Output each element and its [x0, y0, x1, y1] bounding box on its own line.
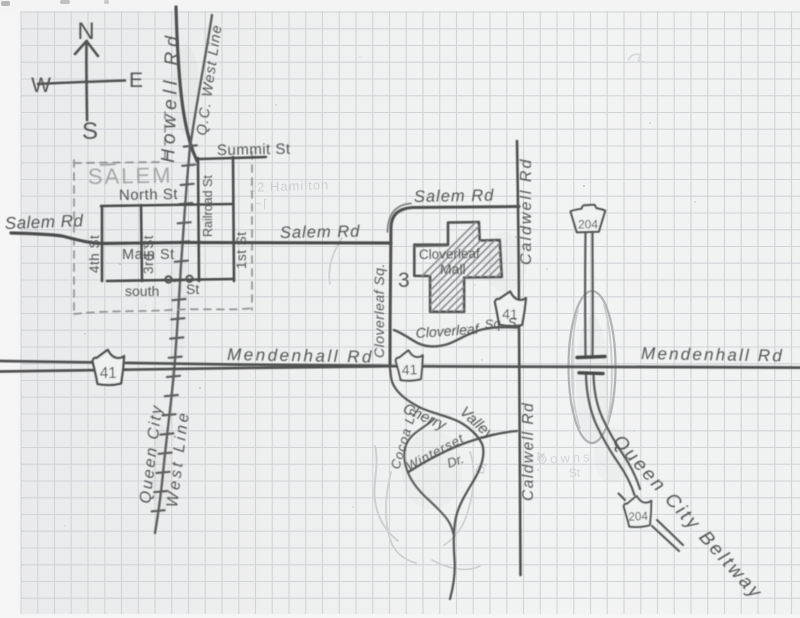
svg-text:41: 41 [100, 365, 117, 382]
svg-text:N: N [77, 18, 94, 45]
svg-text:St: St [568, 465, 581, 480]
svg-text:south: south [125, 283, 159, 299]
svg-text:Caldwell Rd: Caldwell Rd [518, 158, 535, 265]
svg-text:~⌈: ~⌈ [255, 197, 269, 211]
svg-text:Cloverleaf: Cloverleaf [419, 246, 480, 262]
svg-text:Summit St: Summit St [217, 141, 291, 159]
svg-text:Caldwell Rd: Caldwell Rd [520, 402, 537, 501]
svg-text:Cloverleaf Sq.: Cloverleaf Sq. [371, 263, 387, 358]
svg-text:Railroad St: Railroad St [201, 175, 215, 237]
svg-text:Salem Rd: Salem Rd [414, 187, 495, 206]
svg-text:S: S [82, 118, 98, 145]
svg-text:SALEM: SALEM [88, 163, 173, 189]
svg-text:204: 204 [578, 217, 598, 231]
svg-text:Sq. S.: Sq. S. [484, 315, 520, 332]
svg-text:204: 204 [628, 510, 649, 524]
svg-text:3: 3 [398, 269, 410, 292]
svg-text:E: E [129, 69, 143, 92]
svg-text:Salem Rd: Salem Rd [4, 211, 83, 233]
svg-text:3rd St: 3rd St [141, 235, 156, 274]
svg-text:W: W [31, 74, 51, 97]
svg-text:St: St [186, 281, 199, 297]
svg-text:North St: North St [119, 186, 179, 204]
svg-text:Mendenhall Rd: Mendenhall Rd [227, 345, 374, 367]
svg-text:Mall: Mall [440, 261, 466, 277]
svg-text:Mendenhall Rd: Mendenhall Rd [641, 344, 784, 365]
svg-text:4th St: 4th St [87, 235, 102, 273]
svg-text:41: 41 [401, 361, 417, 378]
svg-text:Salem Rd: Salem Rd [280, 223, 361, 242]
svg-text:1st St: 1st St [234, 231, 249, 269]
svg-text:12 Hamilton: 12 Hamilton [249, 177, 330, 195]
